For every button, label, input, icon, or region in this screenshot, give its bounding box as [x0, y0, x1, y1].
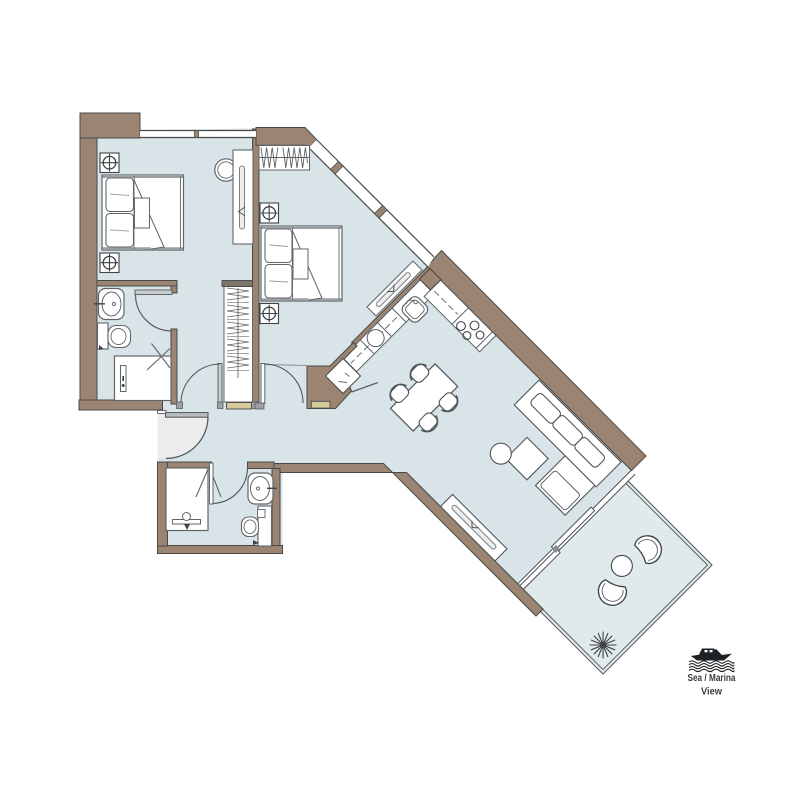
svg-text:View: View: [701, 687, 722, 698]
svg-text:Sea / Marina: Sea / Marina: [688, 673, 736, 684]
